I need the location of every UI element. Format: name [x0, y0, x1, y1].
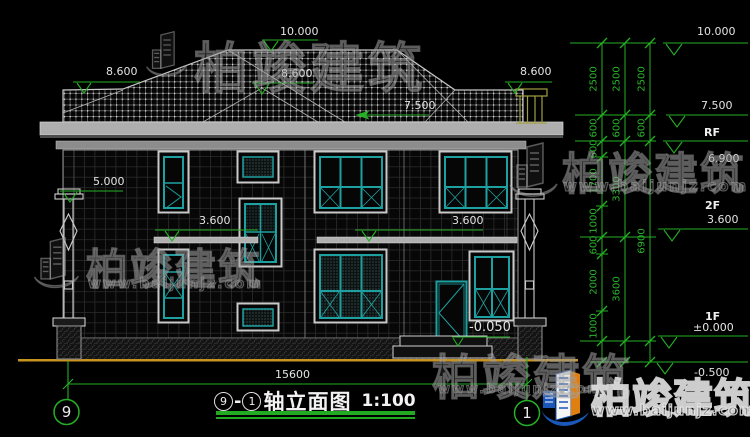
- dim-entry-level: -0.050: [469, 320, 511, 335]
- title-scale: 1:100: [361, 391, 415, 411]
- dim-floor2-right: 3.600: [452, 214, 484, 227]
- chain-middle-3: 3600: [612, 276, 623, 301]
- brand-logo-color: [540, 370, 589, 426]
- dim-eave-right: 8.600: [520, 65, 552, 78]
- dim-roof-low: 7.500: [404, 99, 436, 112]
- chain-middle-2: 3300: [612, 176, 623, 201]
- floor2-ledge: [154, 237, 517, 243]
- chain-middle-0: 2500: [612, 66, 623, 91]
- dim-left-wall: 5.000: [93, 175, 125, 188]
- level-parapet: 6.900: [708, 152, 740, 165]
- dim-floor2-left: 3.600: [199, 214, 231, 227]
- chain-inner-7: 1000: [589, 313, 600, 338]
- chain-inner-1: 600: [589, 118, 600, 137]
- title-axis-right: 1: [242, 392, 261, 411]
- porch-steps: [393, 336, 492, 358]
- chain-inner-6: 2000: [589, 269, 600, 294]
- dim-ridge: 10.000: [280, 25, 319, 38]
- level-2f: 2F: [705, 199, 720, 212]
- level-base: -0.500: [694, 366, 729, 379]
- level-rf: RF: [704, 126, 720, 139]
- axis-bubble-right: 1: [522, 404, 532, 422]
- window-1f-narrow: [159, 250, 189, 323]
- chain-inner-4: 1000: [589, 208, 600, 233]
- title-underline-2: [216, 417, 415, 419]
- title-axis-left: 9: [214, 392, 233, 411]
- window-1f-right: [470, 252, 514, 321]
- axis-bubble-left: 9: [62, 403, 72, 421]
- chain-outer-0: 2500: [637, 66, 648, 91]
- roof: [63, 50, 523, 122]
- window-1f-vent: [238, 304, 279, 331]
- level-top: 10.000: [697, 25, 736, 38]
- chain-outer-2: 6900: [637, 228, 648, 253]
- cornice: [40, 122, 563, 149]
- chain-inner-5: 600: [589, 235, 600, 254]
- entry-door: [437, 282, 467, 345]
- title-underline: [216, 411, 415, 415]
- cad-elevation-canvas: 10.000 8.600 8.600 8.600 7.500 5.000 3.6…: [0, 0, 750, 437]
- dim-total-width: 15600: [275, 368, 310, 381]
- chain-inner-0: 2500: [589, 66, 600, 91]
- dim-eave-left: 8.600: [106, 65, 138, 78]
- chain-inner-2: 600: [589, 139, 600, 158]
- chain-outer-1: 600: [637, 118, 648, 137]
- lamp-post-right: [514, 189, 546, 359]
- window-2f-left: [315, 152, 387, 213]
- level-1f-elev: ±0.000: [693, 321, 734, 334]
- window-2f-vent: [238, 152, 279, 183]
- level-2f-elev: 3.600: [707, 213, 739, 226]
- chain-middle-1: 600: [612, 118, 623, 137]
- chain-inner-3: 1700: [589, 168, 600, 193]
- level-roof: 7.500: [701, 99, 733, 112]
- window-2f-narrow: [159, 152, 189, 213]
- window-2f-right: [440, 152, 512, 213]
- window-stair: [240, 199, 282, 267]
- window-1f-left: [315, 250, 387, 323]
- title-dash: -: [234, 391, 241, 412]
- dim-eave-mid: 8.600: [281, 67, 313, 80]
- ground-line: [18, 359, 578, 362]
